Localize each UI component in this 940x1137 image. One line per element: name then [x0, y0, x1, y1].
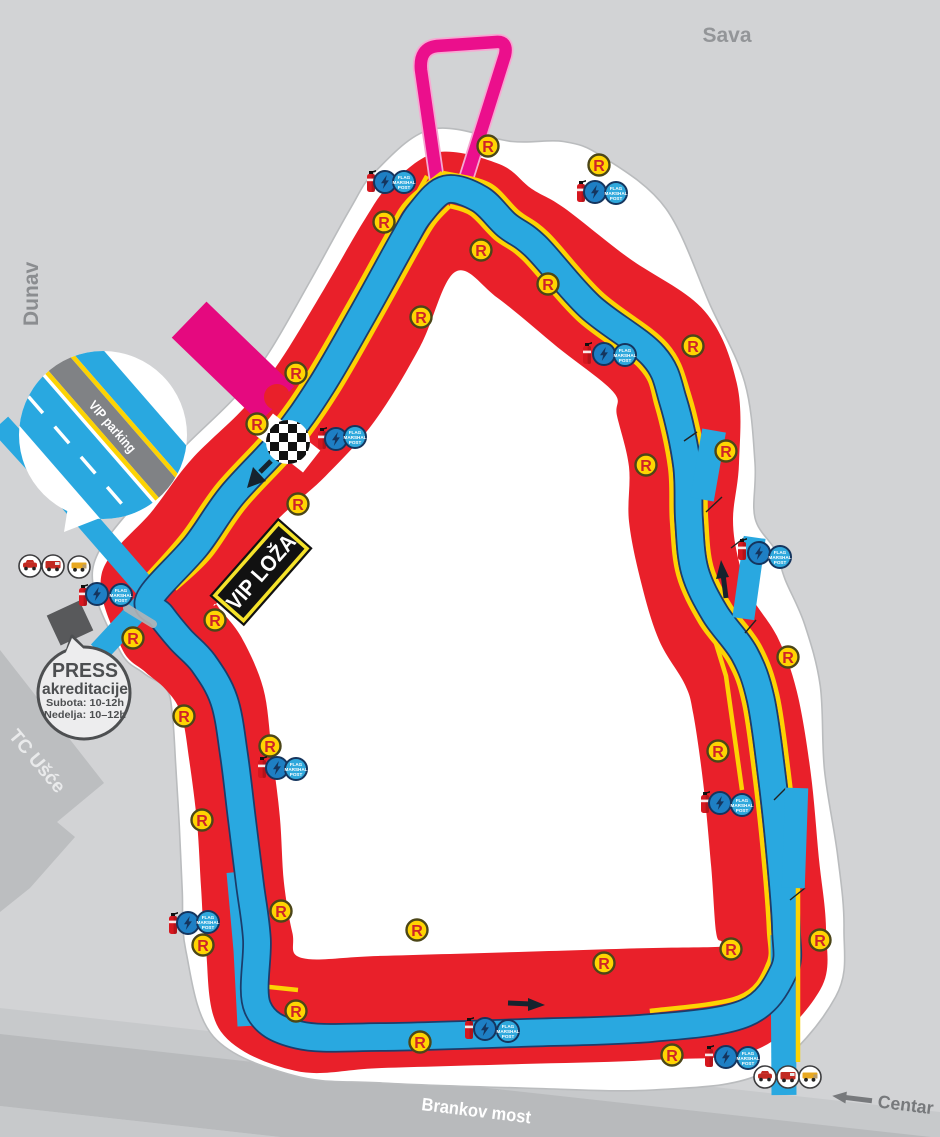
svg-text:Nedelja: 10–12h: Nedelja: 10–12h [44, 709, 126, 721]
svg-text:Subota: 10-12h: Subota: 10-12h [46, 697, 124, 709]
svg-text:Dunav: Dunav [20, 262, 43, 327]
svg-text:Sava: Sava [702, 24, 751, 47]
svg-text:akreditacije: akreditacije [42, 681, 128, 698]
svg-text:PRESS: PRESS [52, 660, 118, 682]
